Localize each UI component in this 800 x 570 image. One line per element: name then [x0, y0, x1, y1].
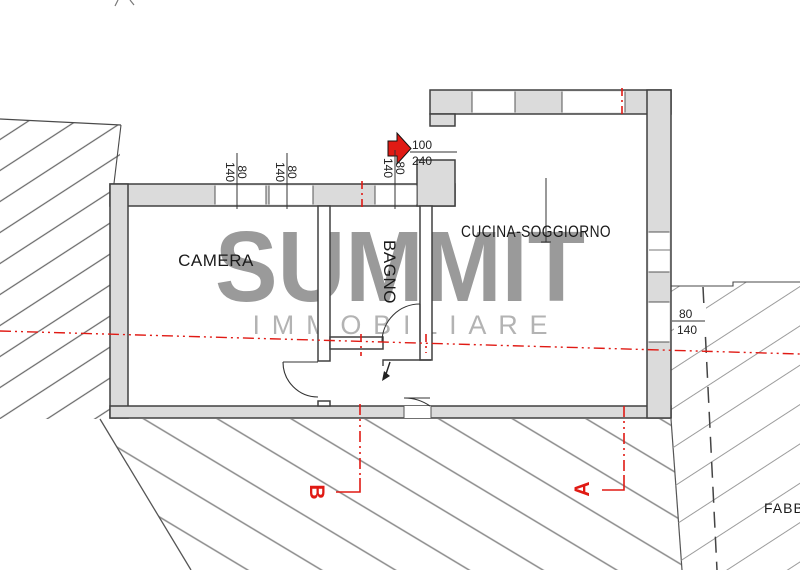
wall-south	[110, 406, 671, 418]
south-door-opening	[404, 406, 431, 418]
entrance-opening	[431, 127, 454, 159]
right-window-dimension: 80 140	[672, 305, 706, 337]
wall-bagno-south	[330, 337, 383, 349]
camera-window-2	[269, 186, 313, 205]
hatch-area-left	[0, 119, 121, 419]
bagno-window-height: 140	[381, 158, 395, 178]
wall-camera-bagno	[318, 206, 330, 361]
entrance-door-width: 100	[412, 138, 432, 152]
room-label-bagno: BAGNO	[380, 240, 399, 304]
camera-window-1-height: 140	[223, 162, 237, 182]
entrance-door-height: 240	[412, 154, 432, 168]
wall-west	[110, 184, 128, 418]
adjacent-building-label: FABBRI	[764, 500, 800, 516]
section-label-a: A	[571, 481, 594, 496]
camera-window-1	[215, 186, 266, 205]
bagno-window	[375, 186, 417, 205]
right-window-height: 140	[677, 323, 697, 337]
floor-plan-drawing: SUMMIT IMMOBILIARE	[0, 0, 800, 570]
camera-window-2-height: 140	[273, 162, 287, 182]
hatch-area-bottom	[100, 419, 682, 570]
right-window-width: 80	[679, 307, 693, 321]
wall-camera-door-stub	[318, 401, 330, 406]
wall-north-cucina	[430, 90, 671, 114]
east-window-1	[649, 232, 671, 272]
room-label-cucina-soggiorno: CUCINA-SOGGIORNO	[461, 222, 611, 241]
east-window-2	[649, 302, 670, 342]
section-label-b: B	[305, 484, 328, 499]
wall-entrance-corner	[430, 114, 455, 126]
cucina-window-2	[562, 92, 625, 113]
cucina-window-1	[472, 92, 515, 113]
room-label-camera: CAMERA	[178, 251, 254, 270]
